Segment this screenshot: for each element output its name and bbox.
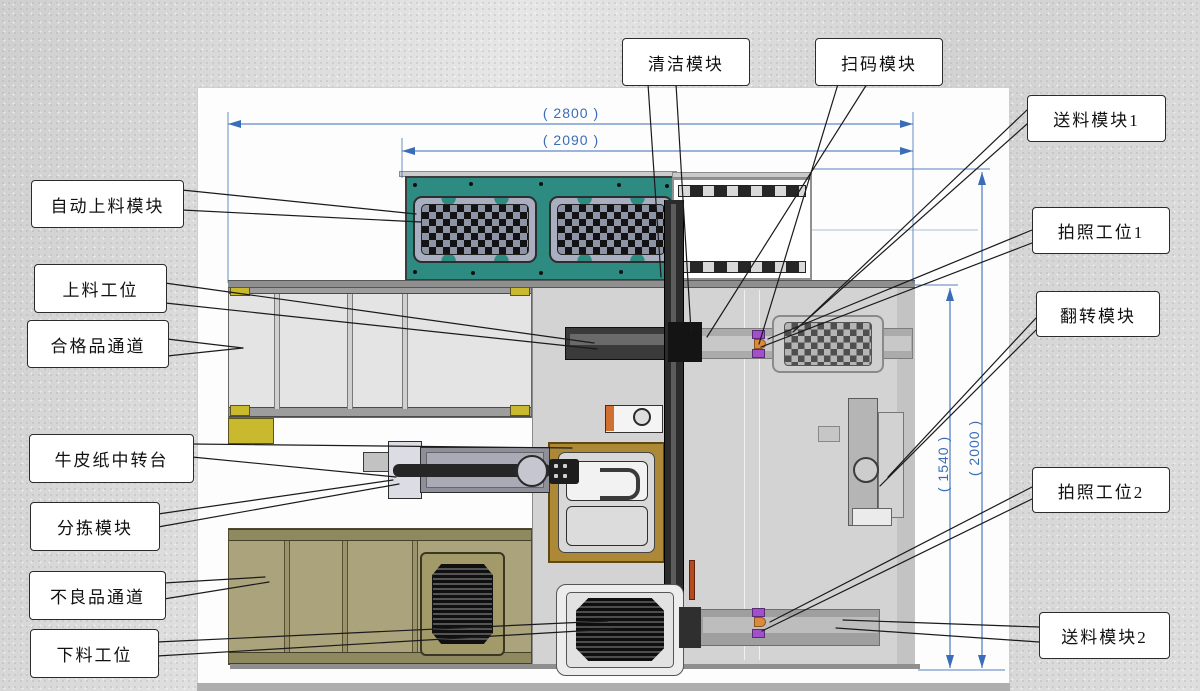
- machine-top-edge: [228, 280, 915, 288]
- dimension-width-inner: ( 2090 ): [511, 132, 631, 148]
- unloading-station-tray: [576, 598, 664, 661]
- rail-sensor-bar: [689, 560, 695, 600]
- scanner-camera-cap: [606, 406, 614, 431]
- flip-module-foot: [852, 508, 892, 526]
- kraft-tray-u-guide: [600, 468, 640, 500]
- conveyor-divider: [274, 294, 280, 409]
- qualified-products-conveyor: [228, 283, 532, 418]
- scanner-camera-lens: [633, 408, 651, 426]
- sorting-robot-connector: [363, 452, 389, 472]
- label-defective-channel: 不良品通道: [29, 571, 166, 620]
- slat-rail: [678, 185, 806, 197]
- label-qualified-channel: 合格品通道: [27, 320, 169, 368]
- label-photo-station-2: 拍照工位2: [1032, 467, 1170, 513]
- sorting-robot-bearing: [516, 455, 548, 487]
- feeding-track-2-head: [679, 607, 701, 648]
- dimension-width-overall: ( 2800 ): [511, 105, 631, 121]
- conveyor-divider: [402, 294, 408, 409]
- conveyor-divider: [347, 294, 353, 409]
- label-feeding-module-2: 送料模块2: [1039, 612, 1170, 659]
- canvas-bottom-edge: [197, 683, 1010, 691]
- gantry-rail-core: [671, 204, 676, 648]
- flip-module-wheel: [853, 457, 879, 483]
- label-auto-loading-module: 自动上料模块: [31, 180, 184, 228]
- tray-defective-ribs: [432, 564, 493, 644]
- dimension-height-inner: ( 1540 ): [935, 424, 951, 504]
- conveyor-divider: [342, 541, 348, 652]
- kraft-paper-side-box: [228, 418, 274, 444]
- feeding-track-2-core: [703, 617, 878, 633]
- label-scanning-module: 扫码模块: [815, 38, 943, 86]
- conveyor-rail: [229, 529, 531, 541]
- label-flipping-module: 翻转模块: [1036, 291, 1160, 337]
- label-loading-station: 上料工位: [34, 264, 167, 313]
- kraft-tray-slot: [566, 506, 648, 546]
- conveyor-divider: [284, 541, 290, 652]
- sorting-robot-gripper: [549, 459, 579, 484]
- corner-block: [230, 405, 250, 416]
- machine-layout-diagram: ( 2800 ) ( 2090 ) ( 1540 ) ( 2000 ) 自动上料…: [0, 0, 1200, 691]
- tray-checker-pattern: [421, 204, 529, 255]
- slat-rail: [678, 261, 806, 273]
- label-photo-station-1: 拍照工位1: [1032, 207, 1170, 254]
- photo-station-1-marker: [752, 330, 765, 358]
- flip-module-pad: [818, 426, 840, 442]
- tray-checker-pattern: [557, 204, 665, 255]
- label-kraft-paper-station: 牛皮纸中转台: [29, 434, 194, 483]
- dimension-height-overall: ( 2000 ): [966, 408, 982, 488]
- label-feeding-module-1: 送料模块1: [1027, 95, 1166, 142]
- flip-module-side-plate: [878, 412, 904, 518]
- label-sorting-module: 分拣模块: [30, 502, 160, 551]
- label-unloading-station: 下料工位: [30, 629, 159, 678]
- label-cleaning-module: 清洁模块: [622, 38, 750, 86]
- photo-station-1-tray-pattern: [784, 322, 872, 366]
- tray-feeder-left: [413, 196, 537, 263]
- conveyor-divider: [412, 541, 418, 652]
- tray-feeder-right: [549, 196, 673, 263]
- corner-block: [510, 405, 530, 416]
- feeding-module-1-frame: [672, 178, 812, 280]
- cleaning-head-block: [668, 322, 702, 362]
- photo-station-2-marker: [752, 608, 765, 638]
